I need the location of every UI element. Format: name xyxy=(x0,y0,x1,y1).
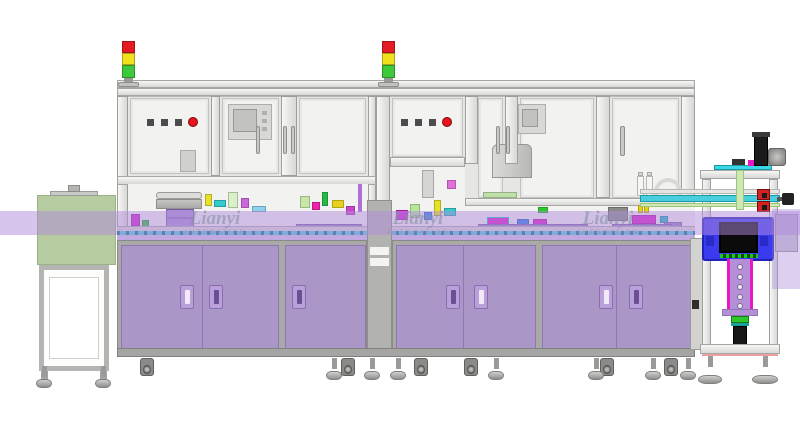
module-tab xyxy=(706,236,714,246)
gearbox xyxy=(768,148,786,166)
station-bottom-bar xyxy=(700,344,780,354)
station-foot xyxy=(680,358,696,380)
clamp-block xyxy=(757,189,770,200)
gripper-green-block xyxy=(731,316,749,323)
bracket-base xyxy=(722,309,758,316)
guide-plate xyxy=(736,170,744,210)
bracket-hole xyxy=(737,264,743,270)
deck-fixture xyxy=(732,159,745,165)
assembly-line-rendering: Lianyi AUTOMATION Lianyi AUTOMATION Lian… xyxy=(0,0,800,438)
knob-stem xyxy=(777,197,782,201)
bracket-hole xyxy=(737,284,743,290)
module-tab xyxy=(760,236,768,246)
station-foot xyxy=(698,356,722,384)
magenta-fitting xyxy=(748,160,754,166)
conveyor-guard-patch-right xyxy=(772,209,800,289)
conveyor-guard-band xyxy=(0,211,800,235)
station-foot xyxy=(752,356,778,384)
bracket-hole xyxy=(737,274,743,280)
servo-motor xyxy=(754,136,768,166)
bracket-hole xyxy=(737,294,743,300)
module-led-strip xyxy=(720,254,758,258)
servo-motor-cap xyxy=(752,132,770,137)
hand-knob xyxy=(782,193,794,205)
